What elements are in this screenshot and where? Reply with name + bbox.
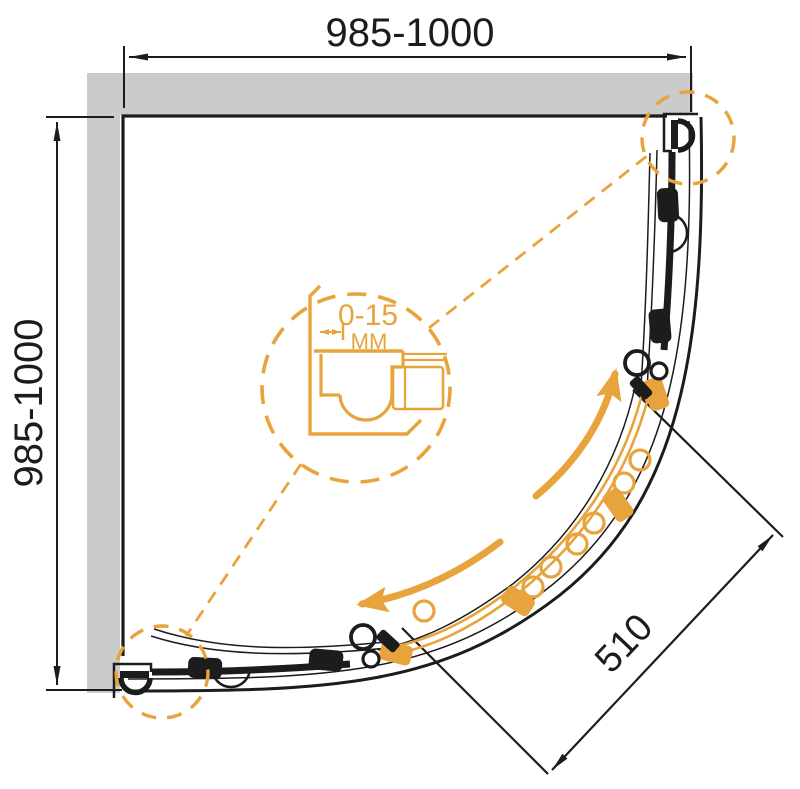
handle-knob-ring — [651, 363, 667, 379]
dim-top-label: 985-1000 — [325, 11, 494, 55]
detail-profile-body — [321, 351, 403, 420]
corner-profile-top-right — [664, 114, 698, 151]
left-wall-strip — [87, 73, 120, 693]
inner-wall-lines — [123, 116, 667, 656]
profile-stem — [120, 671, 149, 678]
leader-line-top-right — [429, 152, 652, 328]
leader-line-bottom-left — [186, 464, 301, 636]
roller-bracket — [648, 308, 672, 344]
outer-frame-curve — [126, 117, 702, 691]
dim-left-label: 985-1000 — [7, 318, 51, 487]
handle-knob-ring — [351, 625, 375, 649]
handle-knob-ring — [363, 651, 379, 667]
handle-knob-ring — [625, 351, 649, 375]
extension-lines-diagonal — [402, 390, 783, 774]
guide-ring — [614, 473, 634, 493]
arrow-up-right — [536, 374, 615, 496]
detail-profile-drawing: 0-15 MM — [310, 286, 447, 434]
detail-range-label: 0-15 — [338, 299, 398, 332]
guide-ring — [630, 450, 650, 470]
dimension-diagonal: 510 — [402, 390, 783, 774]
profile-hook — [121, 678, 150, 693]
profile-hook — [678, 121, 693, 150]
dimension-line-diagonal — [552, 535, 773, 770]
dim-diagonal-label: 510 — [587, 606, 661, 681]
profile-stem — [671, 120, 678, 149]
arrow-down-left — [362, 542, 500, 604]
detail-glass-lines — [403, 354, 447, 360]
top-wall-strip — [87, 73, 693, 115]
guide-ring — [541, 557, 561, 577]
detail-bracket — [393, 367, 443, 409]
enclosure-frame — [126, 117, 702, 691]
shower-enclosure-plan: 985-1000 985-1000 510 — [0, 0, 800, 789]
roller-bracket — [657, 187, 680, 222]
guide-ring — [414, 601, 434, 621]
technical-drawing-canvas: 985-1000 985-1000 510 — [0, 0, 800, 789]
roller-bracket — [308, 648, 344, 672]
roller-bracket — [187, 657, 222, 680]
